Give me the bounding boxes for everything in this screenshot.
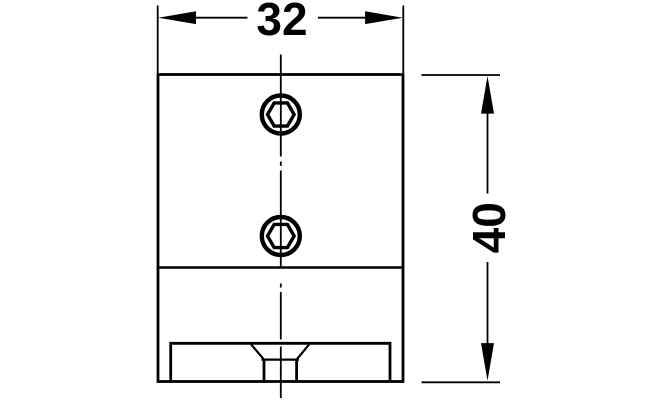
svg-text:32: 32 xyxy=(256,0,307,45)
svg-text:40: 40 xyxy=(463,202,515,253)
